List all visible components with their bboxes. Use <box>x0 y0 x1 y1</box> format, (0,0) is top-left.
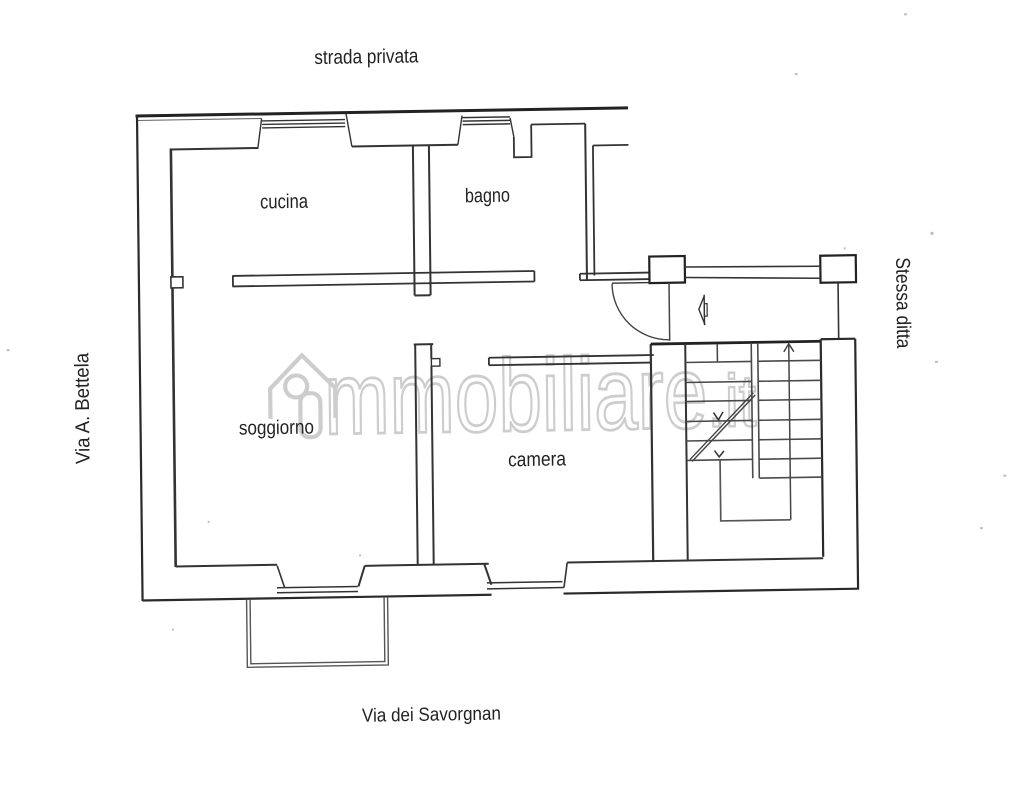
svg-text:bagno: bagno <box>465 185 510 208</box>
svg-text:Via dei Savorgnan: Via dei Savorgnan <box>362 704 501 727</box>
svg-text:camera: camera <box>508 448 567 471</box>
svg-text:cucina: cucina <box>260 191 309 214</box>
svg-text:Stessa ditta: Stessa ditta <box>891 257 914 349</box>
svg-text:Via A. Bettela: Via A. Bettela <box>71 352 94 464</box>
svg-text:strada privata: strada privata <box>314 45 419 69</box>
svg-text:soggiorno: soggiorno <box>239 416 314 439</box>
